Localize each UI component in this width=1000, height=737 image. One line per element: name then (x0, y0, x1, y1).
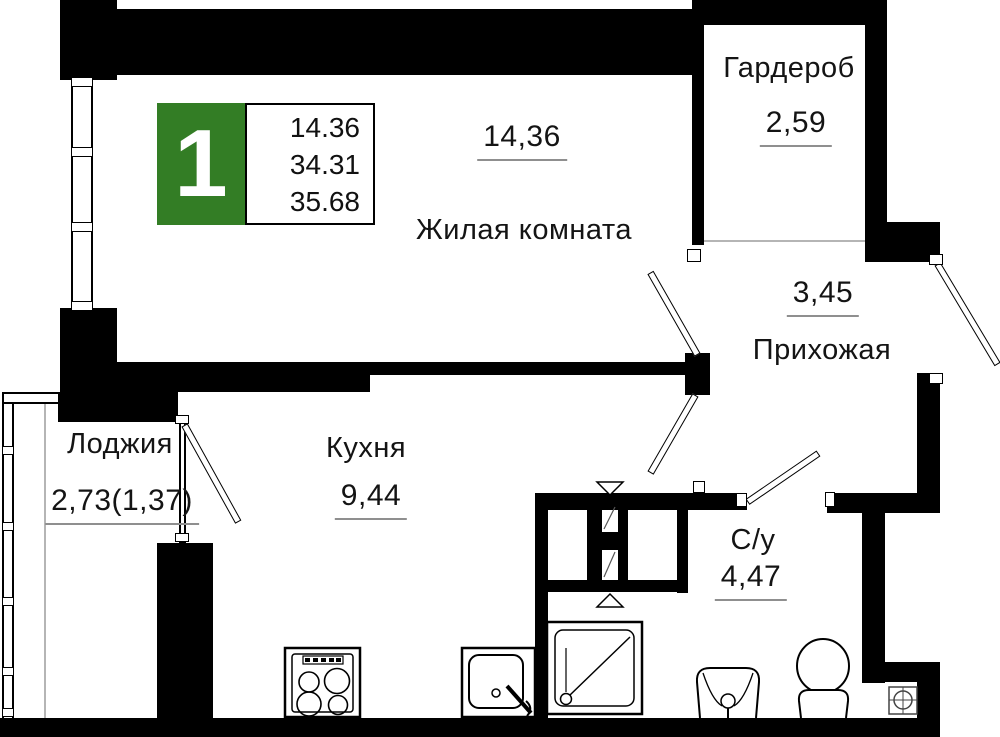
living-room-label: Жилая комната (416, 214, 632, 247)
kitchen-area: 9,44 (335, 479, 407, 513)
wall-shaft-col1 (587, 505, 602, 581)
unit-area-living: 14.36 (247, 109, 360, 146)
wall-shaft-right (677, 505, 688, 593)
unit-badge: 1 14.36 34.31 35.68 (157, 103, 375, 225)
wall-right-mid (917, 373, 940, 513)
shaft-duct-line (604, 552, 615, 577)
unit-areas-box: 14.36 34.31 35.68 (245, 103, 375, 225)
unit-rooms-count: 1 (157, 103, 245, 225)
wall-bath-right (862, 513, 885, 683)
kitchen-label: Кухня (326, 432, 406, 465)
wall-wardrobe-right (865, 20, 887, 242)
wall-bottom (0, 718, 940, 737)
wall-loggia-top (58, 392, 178, 422)
loggia-glazing-left (2, 392, 14, 720)
jamb-living-door (687, 249, 701, 262)
shower-icon (547, 622, 642, 714)
wardrobe-floor-line (704, 240, 865, 242)
kitchen-sink-icon (462, 648, 535, 717)
living-room-area: 14,36 (477, 120, 567, 154)
kitchen-door (647, 393, 698, 474)
drain-symbol-icon (889, 687, 917, 714)
shaft-duct-line (604, 507, 615, 529)
living-window (71, 77, 93, 311)
wall-bath-top-left (535, 493, 747, 510)
jamb-entry-hinge (929, 254, 943, 265)
wall-wardrobe-divider (692, 25, 704, 245)
wall-jog-bottom-right (862, 662, 940, 682)
jamb-kitchen-stop (693, 481, 705, 493)
loggia-label: Лоджия (67, 428, 173, 461)
jamb-balcony-bottom (175, 533, 189, 542)
floor-plan: 1 14.36 34.31 35.68 14,36 Жилая комната … (0, 0, 1000, 737)
vent-marker-up-icon (597, 594, 623, 607)
wall-living-kitchen-thick (117, 362, 370, 392)
bathroom-label: С/у (731, 524, 776, 557)
hallway-area: 3,45 (787, 276, 859, 310)
wardrobe-area: 2,59 (760, 106, 832, 140)
loggia-inner-line (44, 404, 46, 718)
bathroom-door (746, 451, 821, 505)
wall-shaft-left (535, 493, 548, 718)
jamb-entry-latch (929, 373, 943, 384)
entrance-door (934, 262, 1000, 366)
wall-door-stub (685, 353, 710, 395)
unit-area-no-loggia: 34.31 (247, 146, 360, 183)
wall-top-wardrobe (692, 0, 887, 25)
wall-top-main (100, 9, 704, 75)
living-room-door (647, 271, 700, 357)
loggia-area: 2,73(1,37) (45, 484, 199, 518)
wall-shaft-col2 (618, 505, 628, 581)
unit-area-total: 35.68 (247, 183, 360, 220)
wall-shaft-mid (602, 532, 618, 550)
wall-bath-top-right (827, 493, 940, 513)
jamb-balcony-top (175, 415, 189, 424)
washbasin-icon (697, 668, 759, 718)
loggia-glazing-top (2, 392, 60, 404)
hallway-label: Прихожая (753, 334, 891, 367)
bathroom-area: 4,47 (715, 560, 787, 594)
wall-left-mid-block (60, 308, 117, 404)
wall-living-kitchen-thin (370, 362, 697, 375)
stove-icon (285, 648, 360, 717)
jamb-bath-hinge (736, 493, 747, 507)
toilet-icon (797, 639, 849, 718)
jamb-bath-latch (825, 492, 835, 507)
wall-loggia-kitchen (157, 543, 213, 719)
wall-shaft-bottom (535, 580, 688, 592)
wardrobe-label: Гардероб (723, 52, 855, 85)
